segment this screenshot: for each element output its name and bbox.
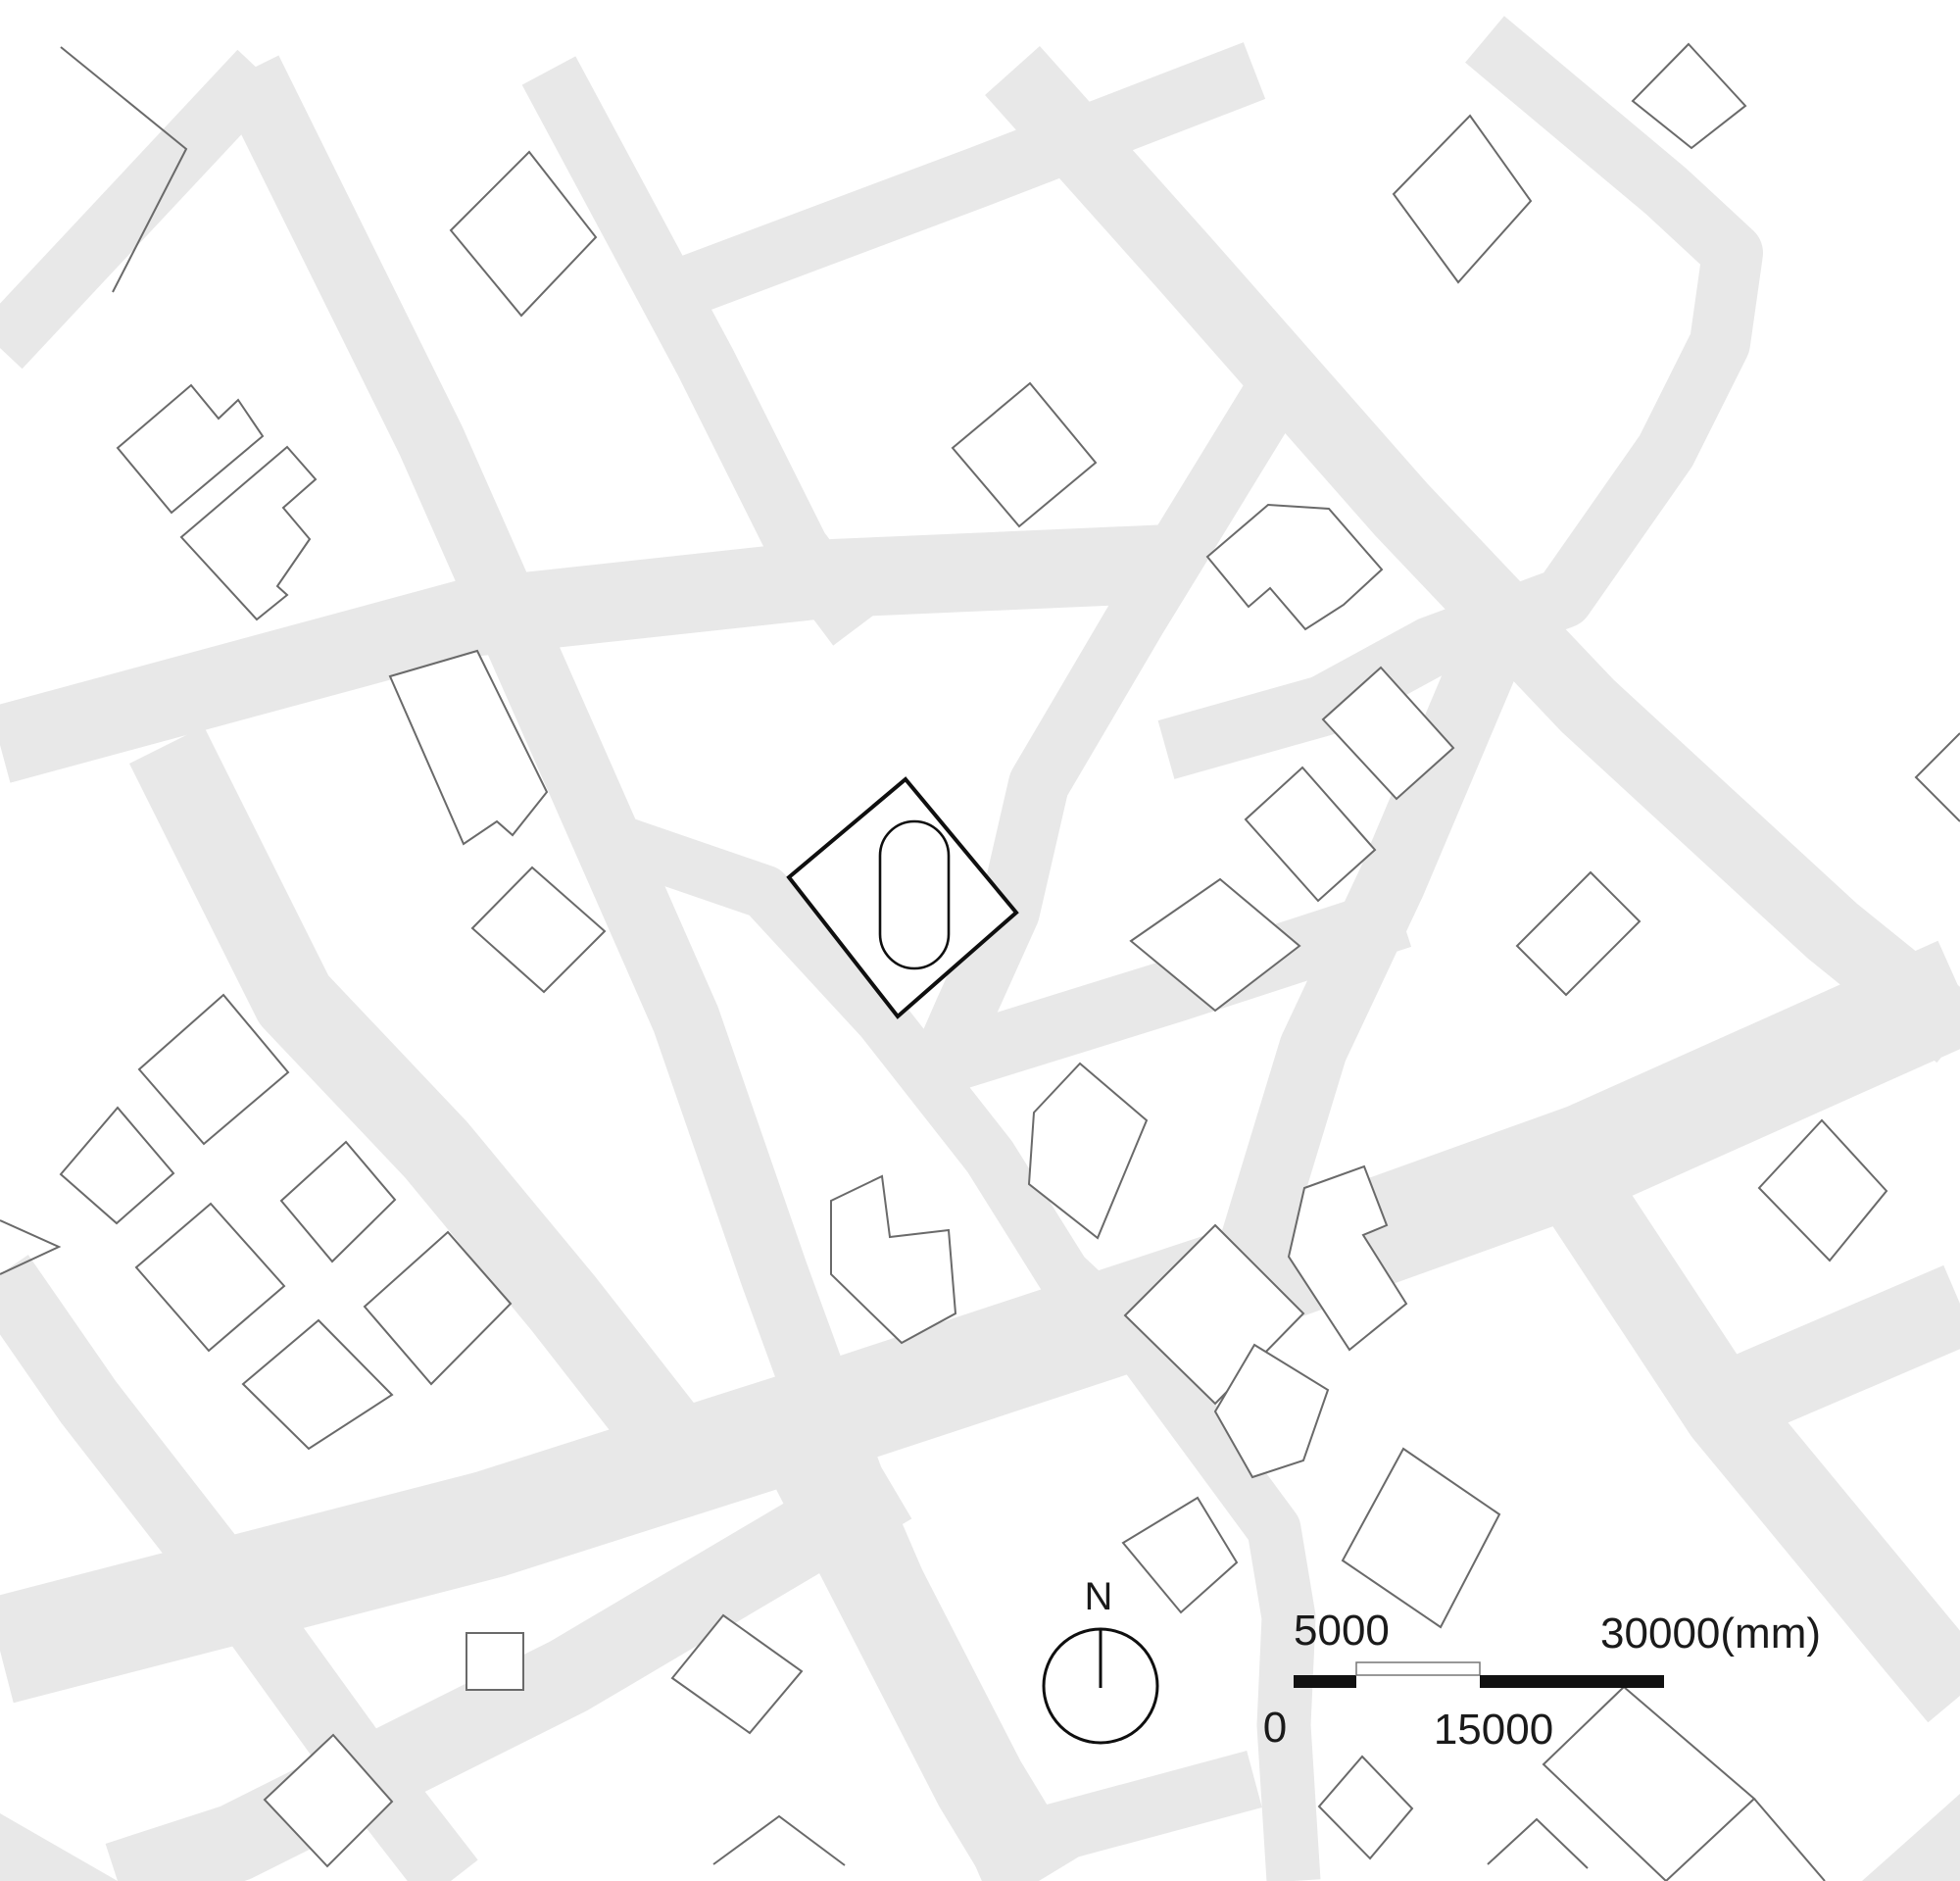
scale-label-0: 5000 <box>1294 1607 1390 1655</box>
scale-label-1: 30000(mm) <box>1600 1609 1821 1658</box>
scale-bar-black-right <box>1480 1675 1664 1688</box>
scale-label-3: 15000 <box>1434 1706 1553 1754</box>
building-axis-square <box>466 1633 523 1690</box>
site-plan-svg: N500030000(mm)015000 <box>0 0 1960 1881</box>
scale-label-2: 0 <box>1263 1704 1287 1752</box>
scale-bar-black-left <box>1294 1675 1356 1688</box>
site-building-capsule <box>880 821 949 968</box>
scale-bar-white-mid <box>1356 1662 1480 1675</box>
site-plan-map: N500030000(mm)015000 <box>0 0 1960 1881</box>
north-label: N <box>1085 1575 1113 1618</box>
